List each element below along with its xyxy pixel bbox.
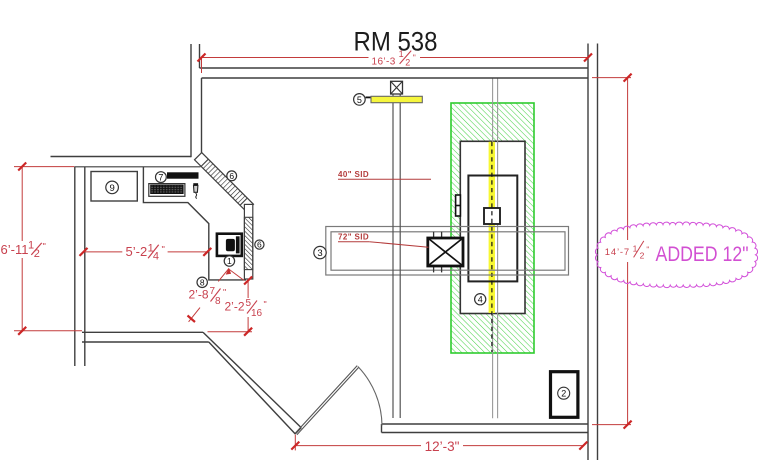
svg-text:12’-3": 12’-3" [425, 439, 460, 454]
svg-text:72" SID: 72" SID [338, 233, 369, 242]
svg-text:8: 8 [215, 296, 221, 307]
svg-text:": " [264, 300, 267, 310]
svg-text:RM 538: RM 538 [354, 27, 438, 57]
svg-text:ADDED 12": ADDED 12" [656, 243, 749, 266]
svg-text:": " [413, 53, 416, 63]
svg-text:6: 6 [257, 240, 262, 250]
svg-text:": " [646, 246, 649, 255]
svg-text:40" SID: 40" SID [338, 170, 369, 179]
svg-text:2’-2: 2’-2 [225, 300, 245, 314]
svg-text:": " [162, 245, 165, 256]
svg-text:16’-3: 16’-3 [372, 57, 396, 68]
svg-text:": " [43, 242, 46, 253]
svg-text:8: 8 [200, 278, 205, 288]
svg-text:2: 2 [561, 389, 566, 399]
svg-text:5’-2: 5’-2 [126, 244, 148, 259]
svg-text:3: 3 [317, 248, 322, 259]
svg-text:6: 6 [229, 171, 234, 181]
svg-text:6’-11: 6’-11 [1, 242, 29, 257]
svg-text:2: 2 [34, 248, 40, 260]
svg-text:9: 9 [109, 183, 114, 194]
svg-text:16: 16 [251, 308, 263, 319]
svg-text:2’-8: 2’-8 [189, 288, 209, 302]
svg-text:2: 2 [405, 58, 410, 68]
svg-text:1: 1 [227, 256, 232, 266]
svg-text:4: 4 [478, 295, 483, 305]
svg-text:7: 7 [158, 172, 163, 182]
svg-text:14’-7: 14’-7 [605, 247, 630, 258]
svg-text:4: 4 [153, 251, 159, 263]
svg-text:5: 5 [357, 95, 362, 105]
svg-text:1: 1 [399, 49, 404, 59]
svg-text:2: 2 [640, 250, 645, 260]
svg-text:": " [223, 288, 226, 298]
